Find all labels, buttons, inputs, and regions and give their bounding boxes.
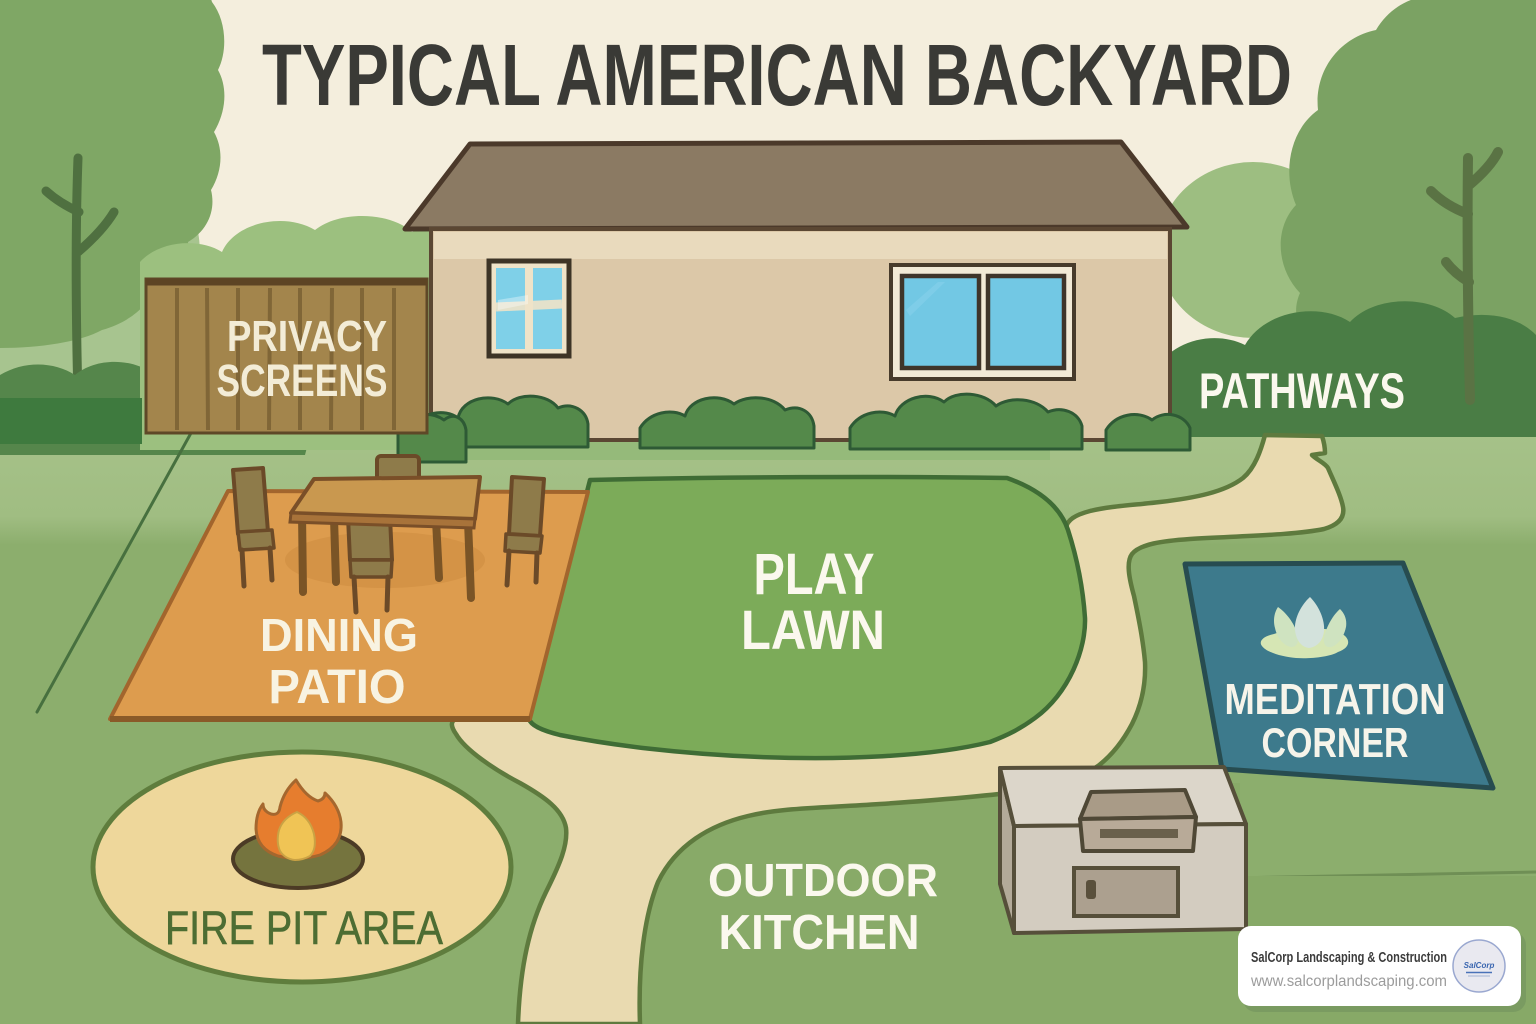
svg-text:MEDITATION: MEDITATION (1225, 676, 1446, 724)
svg-text:CORNER: CORNER (1262, 719, 1409, 766)
svg-text:LAWN: LAWN (741, 598, 885, 661)
svg-text:PRIVACY: PRIVACY (227, 312, 387, 361)
svg-text:OUTDOOR: OUTDOOR (708, 854, 938, 906)
svg-text:www.salcorplandscaping.com: www.salcorplandscaping.com (1250, 973, 1447, 990)
svg-text:FIRE PIT AREA: FIRE PIT AREA (165, 901, 444, 954)
svg-text:TYPICAL AMERICAN BACKYARD: TYPICAL AMERICAN BACKYARD (262, 27, 1292, 124)
svg-text:DINING: DINING (260, 609, 418, 661)
svg-text:PATHWAYS: PATHWAYS (1199, 363, 1405, 419)
svg-text:KITCHEN: KITCHEN (719, 906, 920, 960)
svg-text:SCREENS: SCREENS (217, 355, 388, 406)
svg-text:SalCorp: SalCorp (1464, 961, 1495, 970)
svg-text:SalCorp Landscaping & Construc: SalCorp Landscaping & Construction (1251, 950, 1447, 966)
svg-text:PATIO: PATIO (269, 661, 406, 714)
